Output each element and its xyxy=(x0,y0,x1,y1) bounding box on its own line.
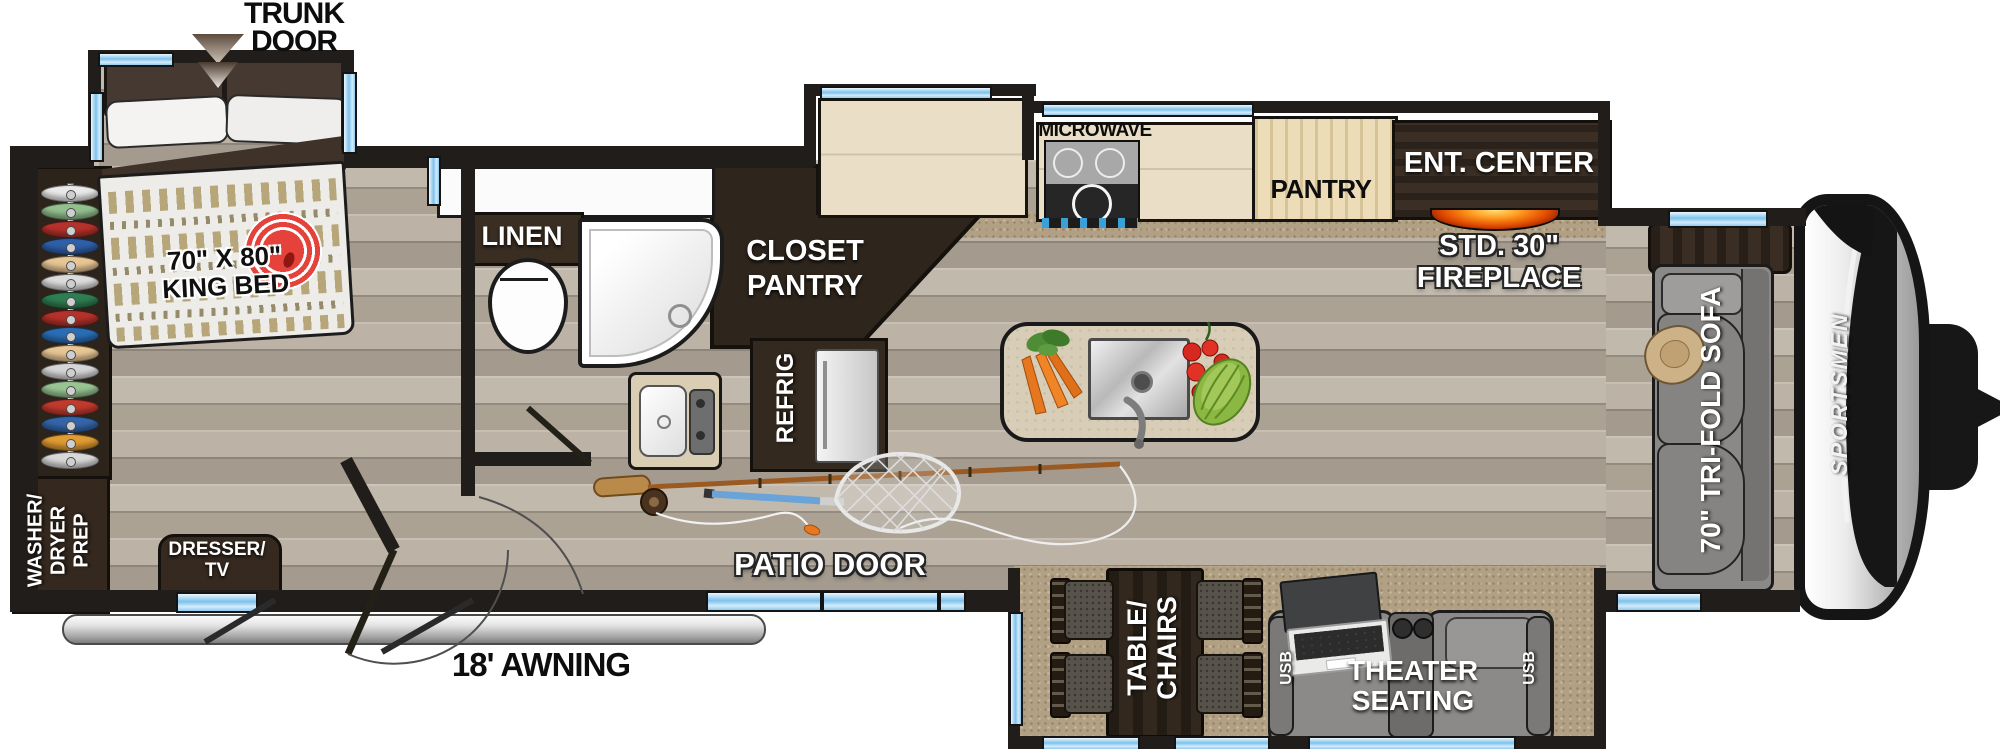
awning-arm xyxy=(205,600,275,642)
bath-door-leaf xyxy=(528,408,590,463)
rv-floorplan: 18' AWNING TRUNK DOOR WASHER/ DRYER PREP xyxy=(0,0,2000,749)
linework-layer xyxy=(0,0,2000,749)
island-faucet-icon xyxy=(1127,400,1142,442)
lettuce-icon xyxy=(1182,349,1261,435)
bath-door-swing-arc xyxy=(479,497,583,594)
carrots-icon xyxy=(1022,327,1082,414)
wall-bedroom-diagonal xyxy=(346,460,394,550)
fishing-lure-icon xyxy=(803,523,821,537)
bedroom-door-leaf xyxy=(348,550,394,654)
fishing-line xyxy=(656,513,810,528)
fishing-net-icon xyxy=(704,438,990,550)
faucet-base xyxy=(1134,439,1144,449)
